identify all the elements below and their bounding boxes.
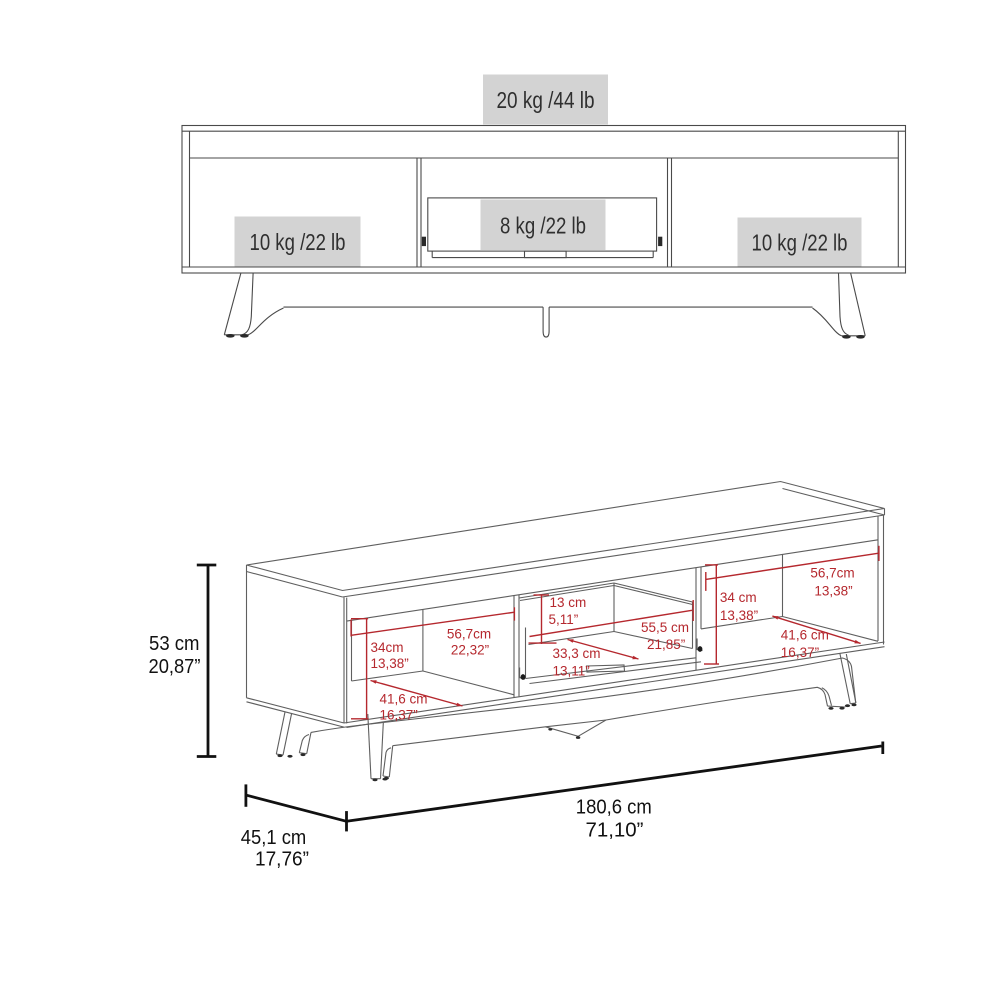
svg-text:13,38”: 13,38” <box>371 656 409 671</box>
svg-text:13,38”: 13,38” <box>720 608 758 623</box>
svg-text:45,1 cm: 45,1 cm <box>241 827 307 849</box>
svg-text:10 kg /22 lb: 10 kg /22 lb <box>250 229 346 255</box>
svg-text:22,32”: 22,32” <box>451 643 489 658</box>
svg-text:56,7cm: 56,7cm <box>810 566 854 581</box>
svg-text:8 kg /22 lb: 8 kg /22 lb <box>500 213 586 239</box>
svg-text:13,38”: 13,38” <box>814 584 852 599</box>
svg-text:53 cm: 53 cm <box>149 633 200 655</box>
svg-text:13,11”: 13,11” <box>553 664 590 679</box>
svg-text:56,7cm: 56,7cm <box>447 627 491 642</box>
svg-text:10 kg /22 lb: 10 kg /22 lb <box>752 229 848 255</box>
svg-text:34cm: 34cm <box>371 640 404 655</box>
svg-text:5,11”: 5,11” <box>549 612 579 627</box>
svg-text:71,10”: 71,10” <box>586 820 644 842</box>
svg-text:13 cm: 13 cm <box>550 595 587 610</box>
svg-text:17,76”: 17,76” <box>255 849 309 871</box>
svg-text:41,6 cm: 41,6 cm <box>781 628 829 643</box>
svg-text:20,87”: 20,87” <box>149 656 201 678</box>
svg-text:16,37”: 16,37” <box>380 708 418 723</box>
svg-text:34 cm: 34 cm <box>720 590 757 605</box>
svg-text:33,3 cm: 33,3 cm <box>553 646 601 661</box>
svg-text:20 kg /44 lb: 20 kg /44 lb <box>497 87 595 113</box>
svg-text:41,6 cm: 41,6 cm <box>380 692 428 707</box>
svg-text:55,5 cm: 55,5 cm <box>641 620 689 635</box>
svg-text:21,85”: 21,85” <box>647 637 685 652</box>
svg-text:16,37”: 16,37” <box>781 645 819 660</box>
svg-text:180,6 cm: 180,6 cm <box>576 796 652 818</box>
